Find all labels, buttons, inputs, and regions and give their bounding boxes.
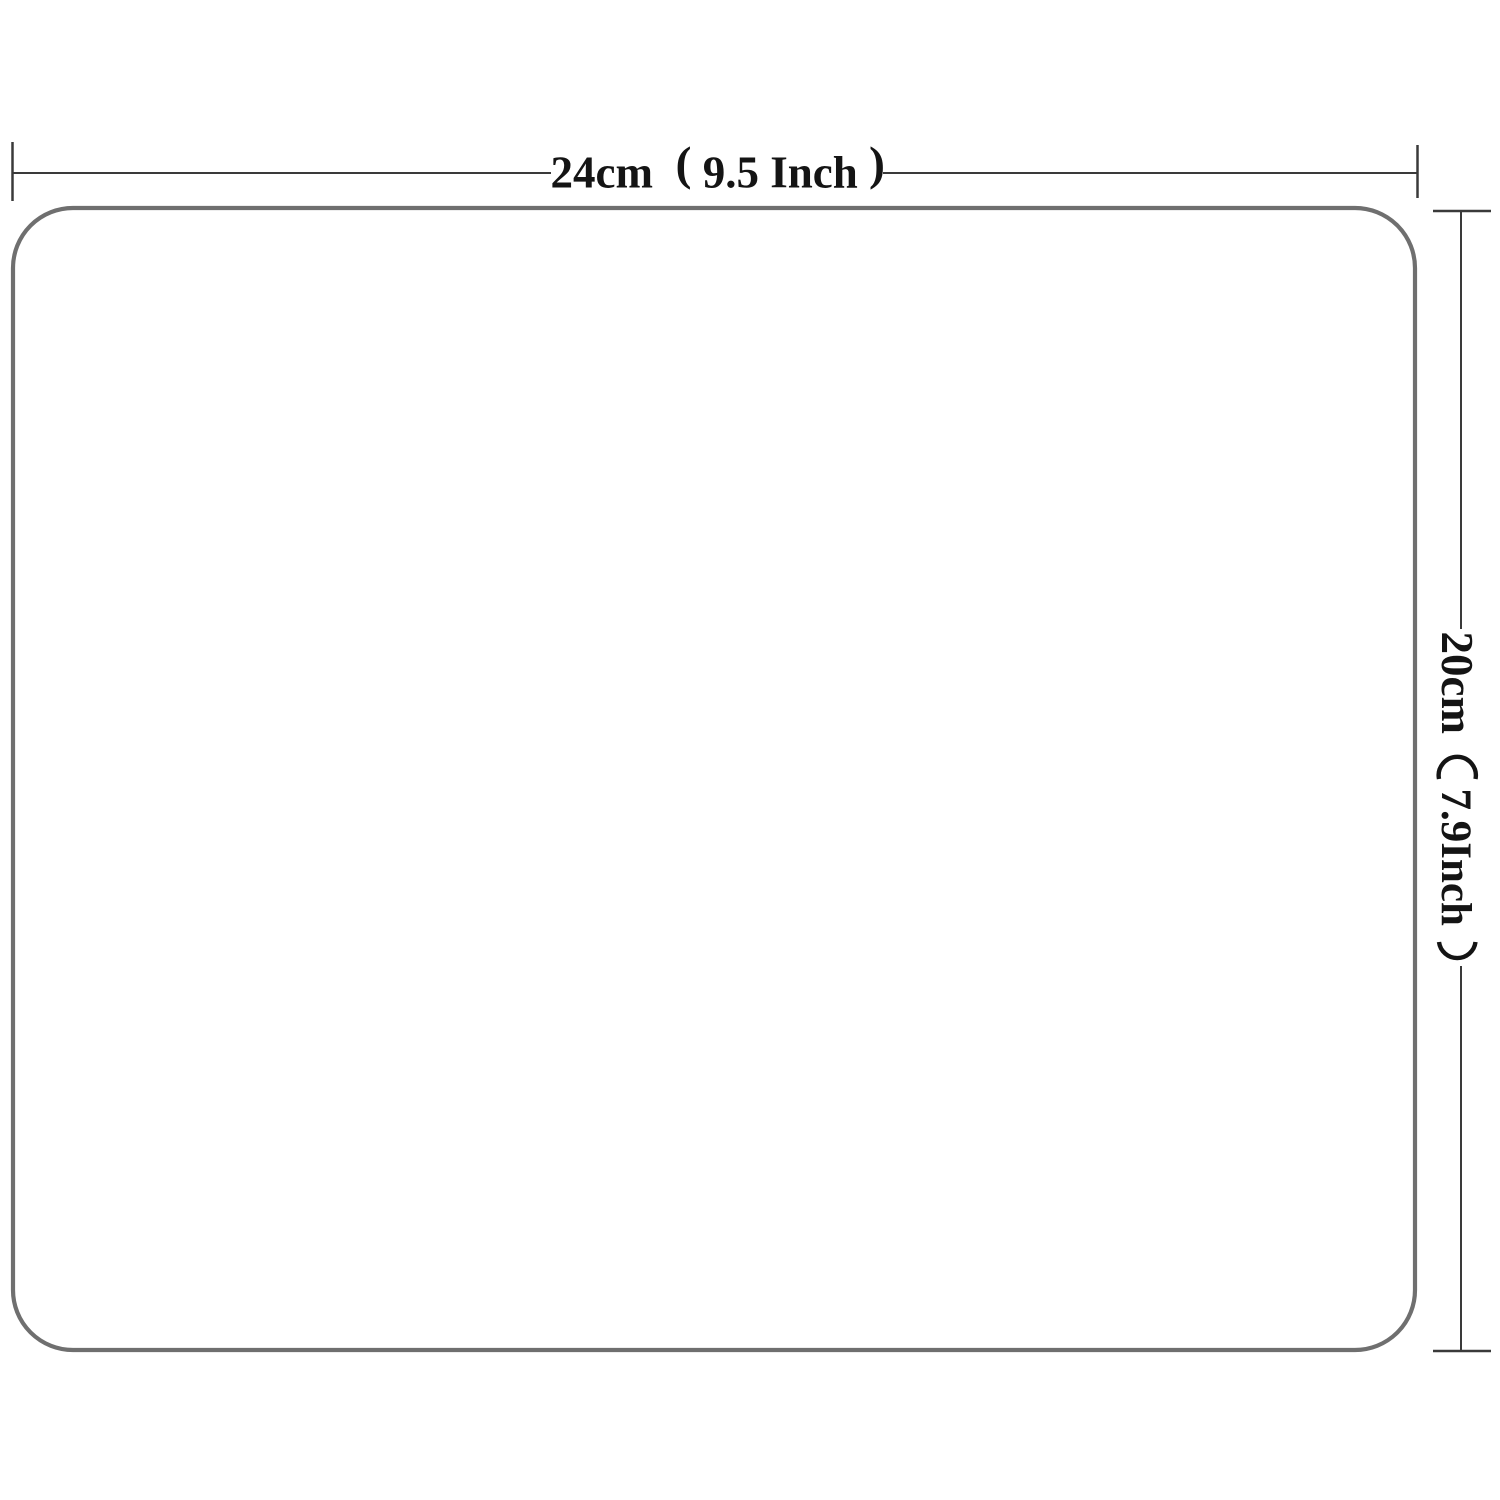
svg-text:7.9Inch: 7.9Inch [1432,789,1479,926]
svg-text:20cm: 20cm [1432,632,1482,734]
